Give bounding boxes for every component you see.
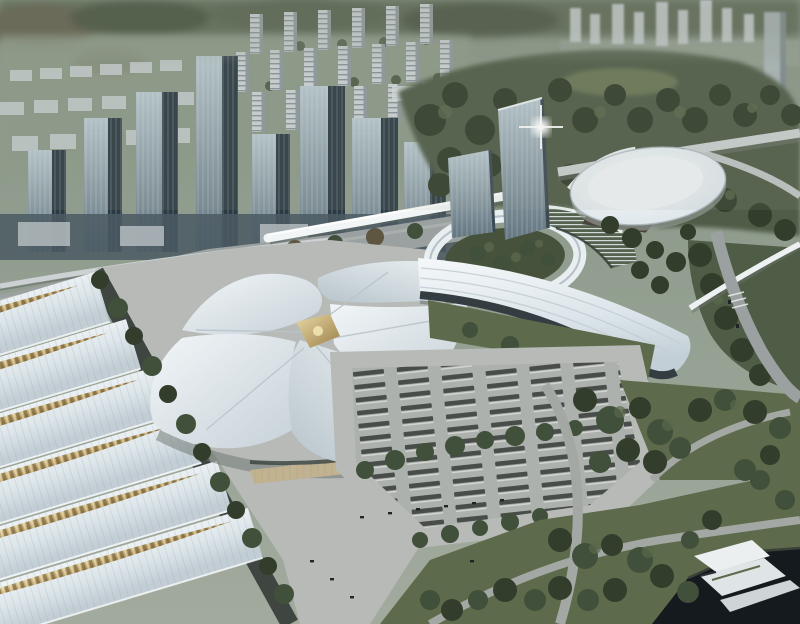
top-haze bbox=[0, 0, 800, 60]
aerial-render-canvas bbox=[0, 0, 800, 624]
aerial-render bbox=[0, 0, 800, 624]
